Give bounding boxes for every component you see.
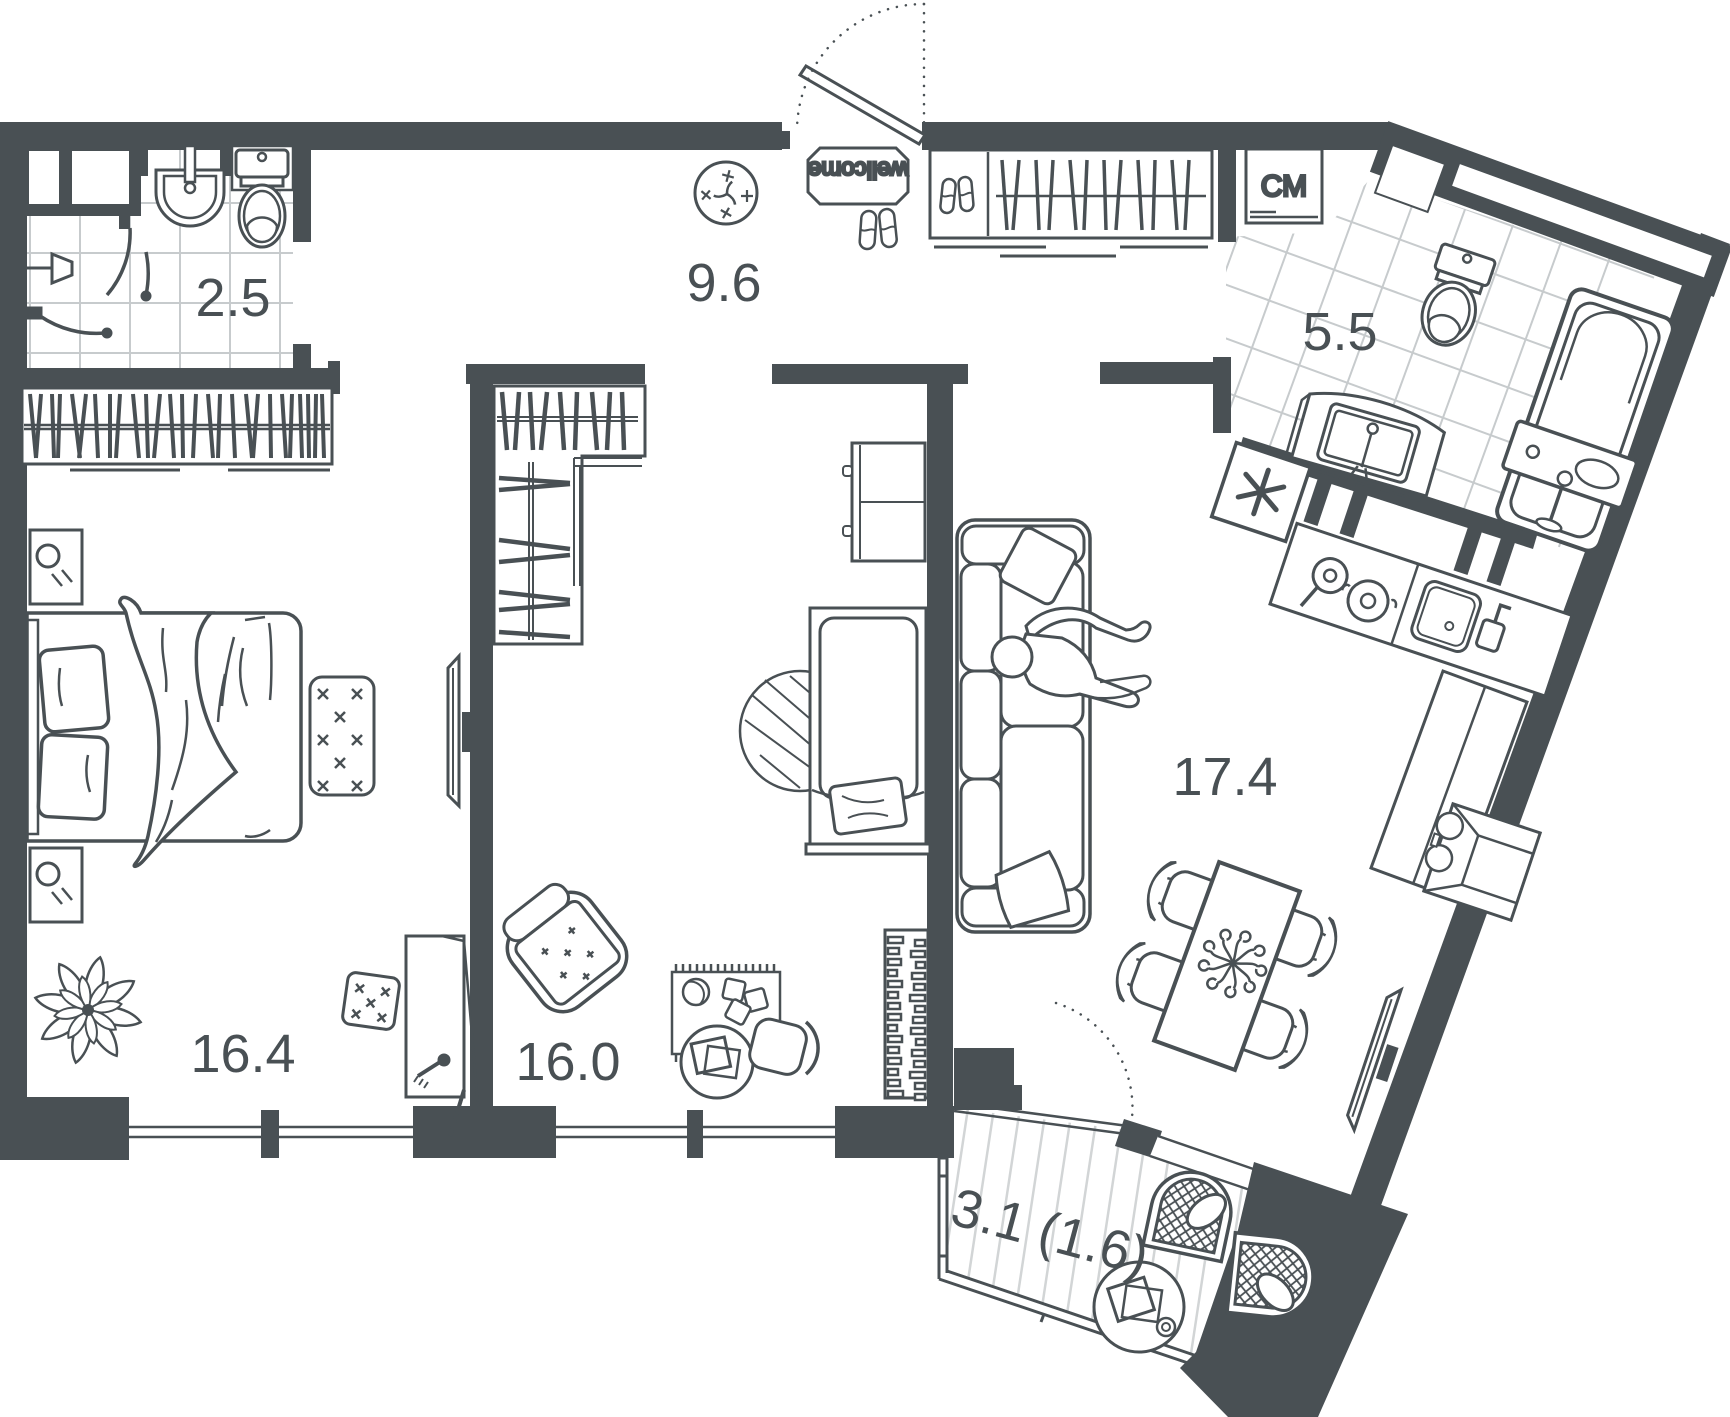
svg-text:wellcome: wellcome xyxy=(808,156,909,183)
svg-text:16.0: 16.0 xyxy=(515,1032,620,1092)
svg-text:9.6: 9.6 xyxy=(686,253,761,313)
svg-text:СМ: СМ xyxy=(1261,170,1307,203)
svg-text:16.4: 16.4 xyxy=(190,1024,295,1084)
svg-text:2.5: 2.5 xyxy=(195,268,270,328)
svg-text:5.5: 5.5 xyxy=(1302,302,1377,362)
svg-text:17.4: 17.4 xyxy=(1172,747,1277,807)
